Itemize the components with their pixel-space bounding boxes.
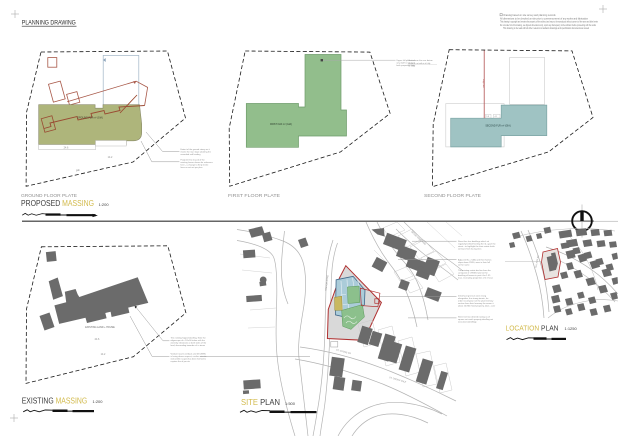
svg-text:ridge line: ridge line (482, 79, 485, 89)
svg-text:1:500: 1:500 (285, 401, 296, 406)
svg-text:1:200: 1:200 (93, 399, 104, 404)
svg-text:14.2: 14.2 (108, 156, 113, 159)
svg-text:execution (dwelling): execution (dwelling) (458, 321, 477, 324)
svg-text:1:1250: 1:1250 (565, 326, 578, 331)
svg-text:FIRST FLOOR PLATE: FIRST FLOOR PLATE (228, 193, 280, 199)
svg-text:24.6: 24.6 (64, 147, 69, 150)
svg-text:about 10.86m fixed property, t: about 10.86m fixed property, total + ove… (458, 305, 496, 308)
svg-text:24.6: 24.6 (95, 338, 100, 341)
svg-text:mounded soft landing: mounded soft landing (181, 153, 202, 156)
svg-text:SECOND FLR m² (GIA): SECOND FLR m² (GIA) (485, 125, 510, 128)
svg-text:Set in from the rear datum: Set in from the rear datum (409, 59, 433, 62)
svg-text:of setg: of setg (409, 65, 416, 68)
svg-text:GROUND FLR m² (GIA): GROUND FLR m² (GIA) (77, 117, 103, 120)
svg-text:SITE PLAN: SITE PLAN (241, 398, 280, 407)
svg-text:LOCATION PLAN: LOCATION PLAN (506, 324, 559, 333)
svg-text:1:200: 1:200 (99, 202, 110, 207)
svg-text:PLANNING DRAWING: PLANNING DRAWING (22, 19, 76, 26)
svg-text:14.2: 14.2 (101, 353, 106, 356)
svg-text:This drawing to be read with a: This drawing to be read with all other r… (503, 27, 590, 30)
svg-text:4.1: 4.1 (495, 116, 498, 118)
svg-text:FIRST FLR m² (GIA): FIRST FLR m² (GIA) (270, 123, 292, 126)
svg-text:9.8: 9.8 (486, 116, 489, 118)
svg-text:capture the of per etc: capture the of per etc (171, 360, 191, 363)
svg-text:set for same: set for same (458, 264, 470, 267)
svg-text:SECOND FLOOR PLATE: SECOND FLOOR PLATE (424, 193, 481, 199)
svg-text:EXISTING LAND + HOUSE: EXISTING LAND + HOUSE (85, 326, 115, 329)
svg-text:set back from facing sites: set back from facing sites (458, 248, 481, 251)
svg-text:lines as set out per plan: lines as set out per plan (181, 166, 204, 169)
svg-text:EXISTING MASSING: EXISTING MASSING (22, 396, 88, 405)
svg-text:PROPOSED MASSING: PROPOSED MASSING (21, 199, 94, 208)
svg-text:land, descending towards rd. i: land, descending towards rd. in terms (171, 344, 206, 347)
svg-text:max. recreating properties of: max. recreating properties of 2 it have (458, 277, 494, 280)
svg-text:GROUND FLOOR PLATE: GROUND FLOOR PLATE (21, 193, 77, 199)
svg-text:gdn: gdn (76, 169, 81, 172)
